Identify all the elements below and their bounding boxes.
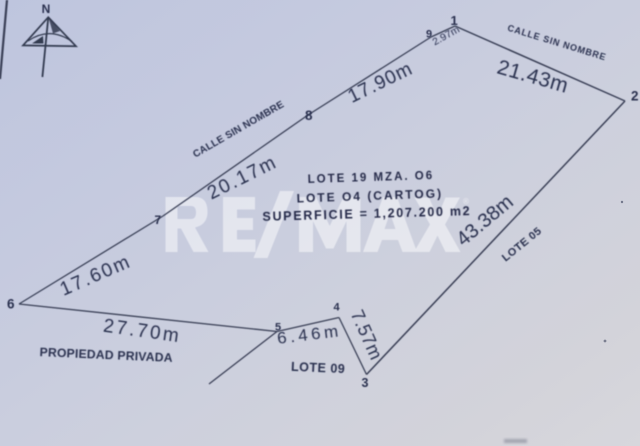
svg-text:6: 6: [7, 297, 15, 312]
svg-text:4: 4: [334, 302, 341, 314]
svg-text:2: 2: [631, 89, 639, 104]
svg-text:8: 8: [305, 108, 313, 123]
svg-text:LOTE 09: LOTE 09: [291, 360, 346, 376]
svg-text:7: 7: [155, 213, 162, 227]
svg-text:3: 3: [362, 376, 369, 390]
svg-text:N: N: [42, 2, 51, 16]
